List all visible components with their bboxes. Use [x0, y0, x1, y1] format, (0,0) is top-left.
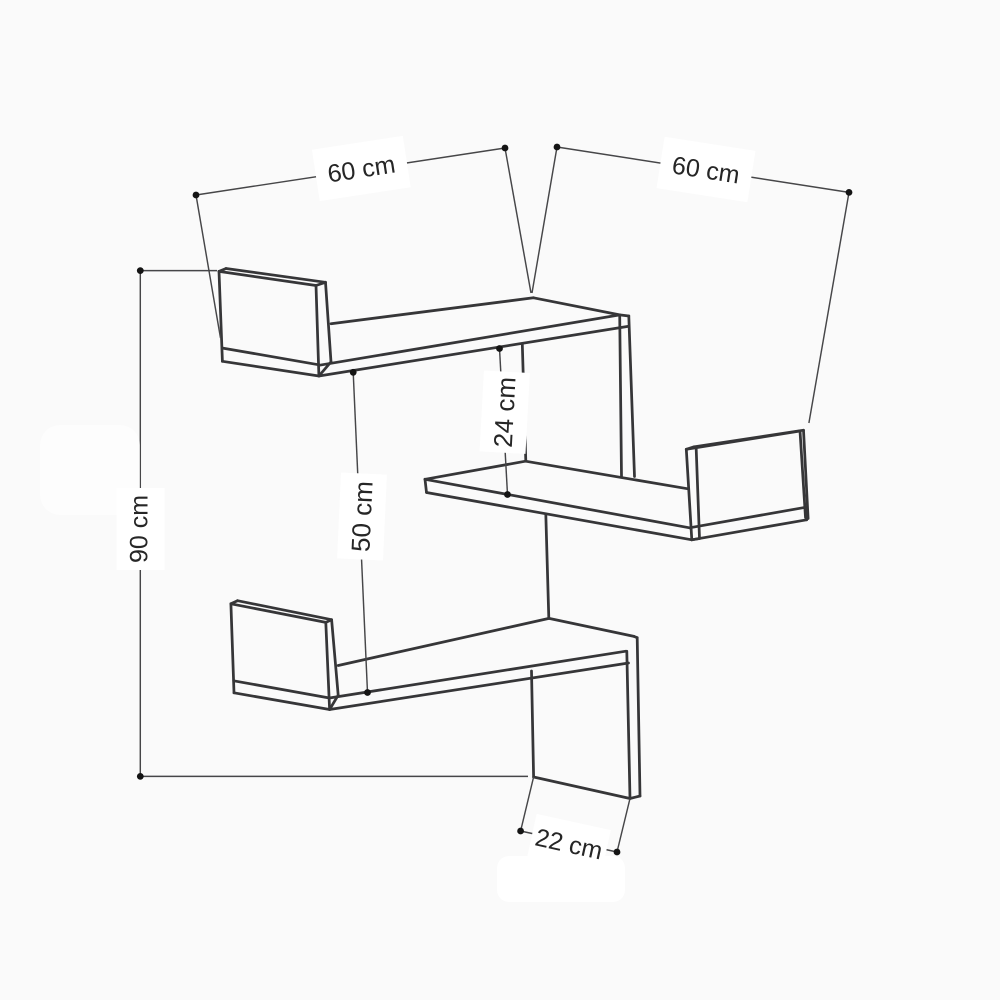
svg-text:24 cm: 24 cm	[488, 376, 522, 448]
svg-text:90 cm: 90 cm	[126, 495, 154, 563]
svg-text:50 cm: 50 cm	[345, 480, 378, 552]
